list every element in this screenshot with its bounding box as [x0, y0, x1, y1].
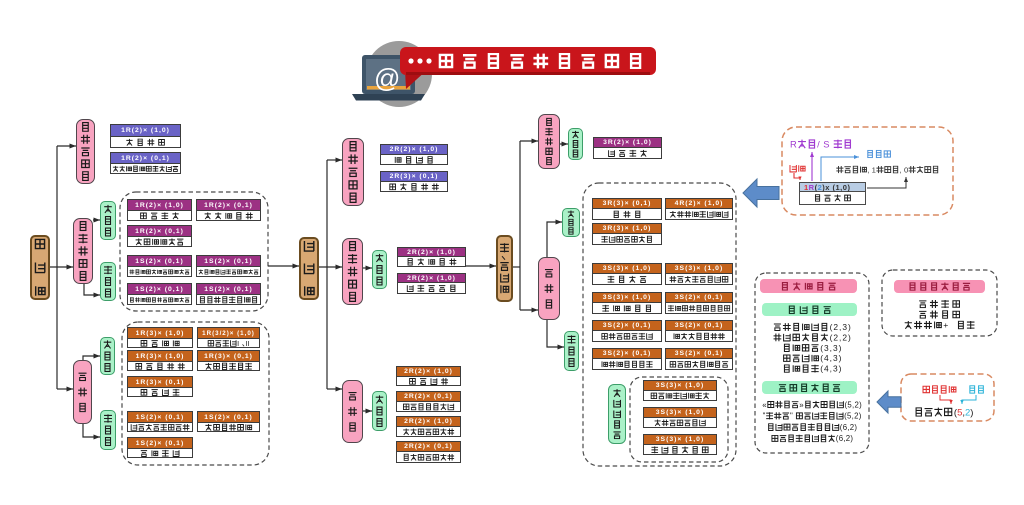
svg-text:(6,2): (6,2)	[840, 423, 858, 432]
svg-text:R: R	[790, 138, 797, 149]
svg-text:II: II	[245, 339, 250, 348]
svg-text:+: +	[943, 320, 949, 330]
svg-text:/ S: / S	[817, 138, 830, 149]
svg-text:(5,2): (5,2)	[954, 407, 974, 418]
svg-text:1R(2)x (1,0): 1R(2)x (1,0)	[804, 183, 850, 192]
svg-text:": "	[763, 412, 766, 421]
svg-text:(4,3): (4,3)	[820, 364, 842, 374]
svg-text:(4,3): (4,3)	[820, 353, 842, 363]
svg-text:(6,2): (6,2)	[836, 434, 854, 443]
svg-text:@: @	[374, 63, 400, 93]
svg-text:»: »	[799, 400, 804, 409]
svg-text:(5,2): (5,2)	[844, 412, 862, 421]
svg-text:(5,2): (5,2)	[845, 400, 863, 409]
svg-text:I: I	[237, 339, 239, 348]
svg-text:(2,2): (2,2)	[830, 332, 852, 342]
svg-text:, 1: , 1	[867, 165, 876, 174]
svg-text:(2,3): (2,3)	[830, 322, 852, 332]
svg-text:«: «	[762, 400, 767, 409]
svg-text:": "	[790, 412, 793, 421]
svg-text:(3,3): (3,3)	[820, 343, 842, 353]
svg-text:, 0: , 0	[900, 165, 909, 174]
